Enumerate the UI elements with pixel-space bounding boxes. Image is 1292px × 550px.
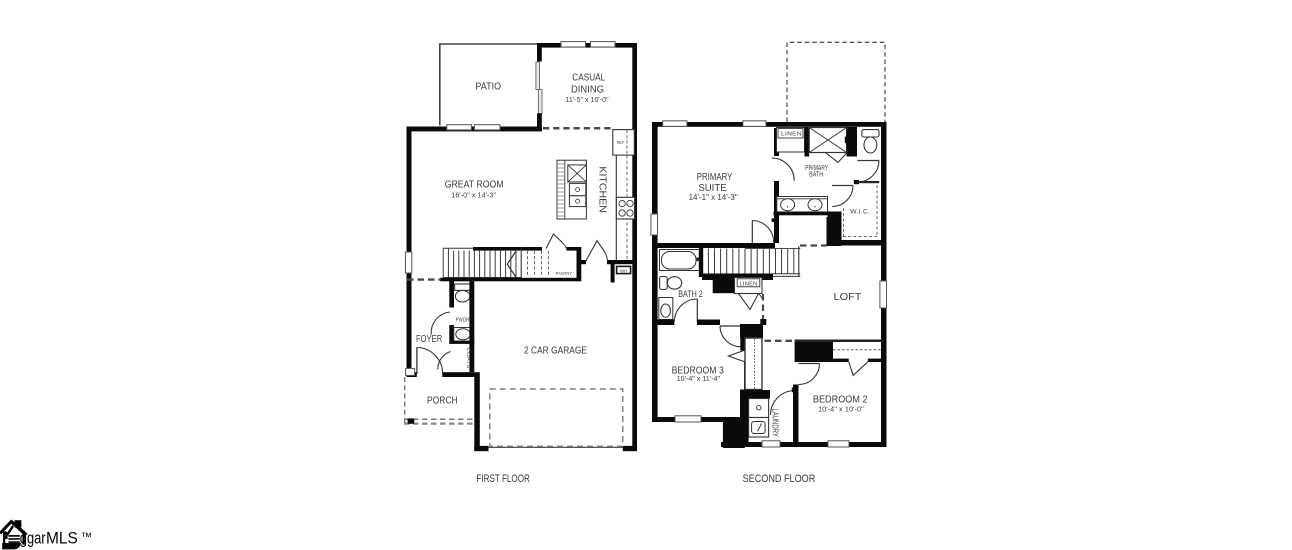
svg-text:BATH: BATH: [809, 172, 823, 179]
svg-text:14'-1" x 14'-3": 14'-1" x 14'-3": [689, 192, 738, 202]
svg-text:DINING: DINING: [571, 84, 604, 95]
svg-text:CASUAL: CASUAL: [572, 73, 605, 84]
svg-text:LINEN: LINEN: [740, 281, 758, 287]
svg-text:16'-0" x 14'-3": 16'-0" x 14'-3": [451, 190, 496, 199]
svg-text:BATH 2: BATH 2: [678, 289, 703, 299]
svg-text:2 CAR GARAGE: 2 CAR GARAGE: [524, 345, 587, 357]
svg-text:PATIO: PATIO: [475, 80, 501, 92]
svg-text:MLS: MLS: [46, 529, 78, 548]
svg-text:WH: WH: [620, 268, 627, 273]
svg-text:11'-5" x 10'-0": 11'-5" x 10'-0": [566, 95, 609, 104]
svg-text:W.I.C.: W.I.C.: [850, 209, 870, 216]
svg-text:GREAT ROOM: GREAT ROOM: [445, 179, 504, 191]
svg-text:PRIMARY: PRIMARY: [697, 172, 733, 183]
svg-text:KITCHEN: KITCHEN: [596, 166, 607, 212]
svg-text:PWDR: PWDR: [456, 318, 470, 324]
svg-text:LOFT: LOFT: [834, 291, 863, 303]
svg-text:10'-4" x 10'-0": 10'-4" x 10'-0": [818, 405, 864, 414]
svg-text:10'-4" x 11'-4": 10'-4" x 11'-4": [677, 374, 721, 383]
svg-text:FOYER: FOYER: [416, 333, 443, 345]
svg-text:LAUNDRY: LAUNDRY: [771, 409, 780, 438]
svg-text:COATS: COATS: [466, 348, 471, 369]
svg-text:™: ™: [81, 532, 93, 544]
svg-text:REF: REF: [617, 140, 625, 145]
svg-text:PANTRY: PANTRY: [556, 271, 572, 276]
svg-text:ggar: ggar: [20, 530, 46, 548]
svg-text:LINEN: LINEN: [781, 132, 802, 138]
svg-text:PORCH: PORCH: [427, 394, 458, 406]
svg-text:SECOND FLOOR: SECOND FLOOR: [743, 473, 816, 485]
svg-text:FIRST FLOOR: FIRST FLOOR: [476, 473, 530, 485]
